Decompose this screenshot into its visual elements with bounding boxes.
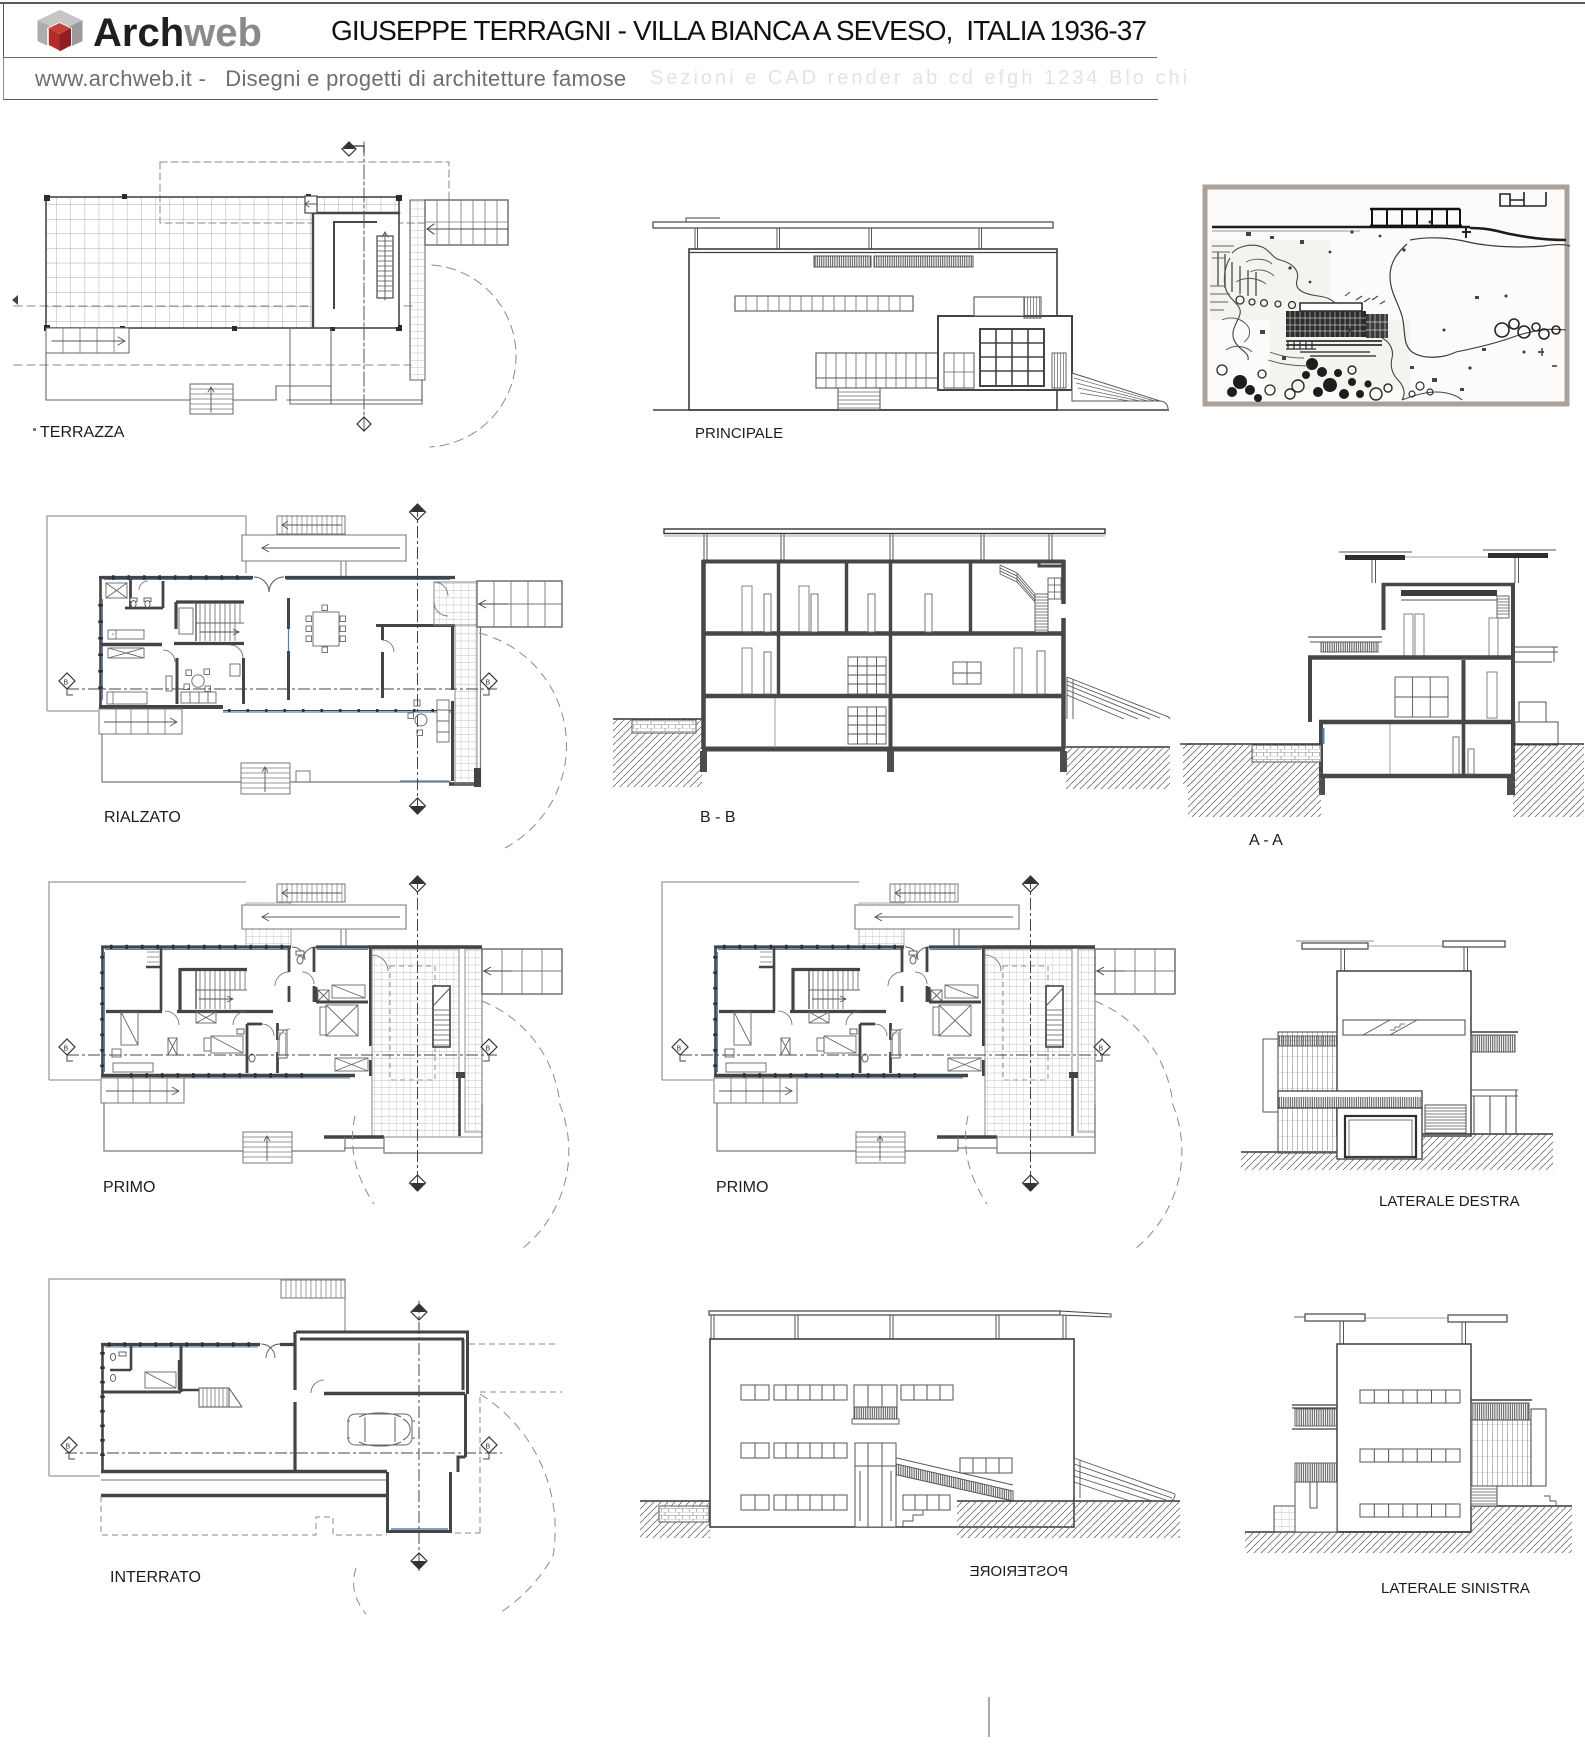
svg-text:INTERRATO: INTERRATO: [110, 1569, 201, 1586]
svg-text:POSTERIORE: POSTERIORE: [970, 1563, 1068, 1580]
svg-text:B: B: [486, 680, 491, 687]
svg-text:LATERALE SINISTRA: LATERALE SINISTRA: [1381, 1580, 1530, 1597]
svg-text:RIALZATO: RIALZATO: [104, 809, 181, 826]
svg-text:B: B: [64, 680, 69, 687]
svg-text:PRINCIPALE: PRINCIPALE: [695, 425, 783, 442]
svg-text:B: B: [486, 1444, 491, 1451]
svg-text:TERRAZZA: TERRAZZA: [40, 424, 125, 441]
svg-text:LATERALE DESTRA: LATERALE DESTRA: [1379, 1193, 1520, 1210]
svg-text:B: B: [66, 1444, 71, 1451]
svg-text:A - A: A - A: [1249, 832, 1283, 849]
svg-text:B: B: [64, 1046, 69, 1053]
svg-text:PRIMO: PRIMO: [103, 1179, 155, 1196]
svg-text:B - B: B - B: [700, 809, 736, 826]
svg-text:B: B: [486, 1046, 491, 1053]
